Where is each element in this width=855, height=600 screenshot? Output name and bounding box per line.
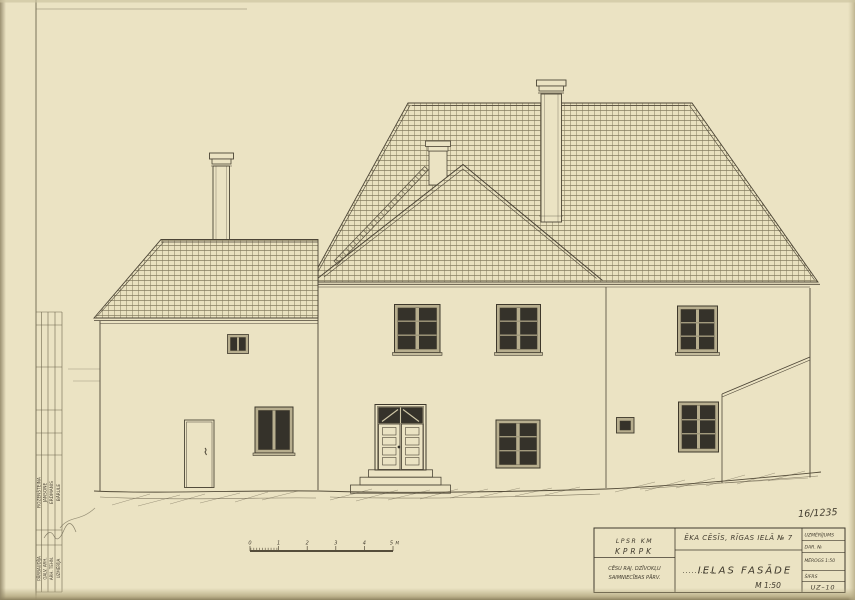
door-handle — [398, 446, 401, 449]
stamp-role-4: UZMĒRĪJA — [56, 559, 61, 579]
window-upper-3 — [676, 306, 720, 355]
scale-label-3: 3 — [334, 541, 337, 547]
stamp-role-3: ARH. TEHN. — [49, 557, 54, 580]
window-upper-1 — [393, 305, 443, 356]
scale-unit: M — [396, 541, 400, 546]
sheet-edge-top — [0, 0, 855, 3]
scale-label-1: 1 — [277, 541, 280, 547]
col-label-dar-nr: DAR. № — [805, 545, 823, 551]
window-small-square — [617, 418, 635, 434]
stamp-name-3: ERDMANIS — [49, 481, 55, 504]
stamp-name-1: ROZENŠTEINA — [35, 477, 42, 508]
col-label-uzmerijums: UZMĒRĪJUMS — [805, 532, 835, 539]
stamp-name-2: JANSONE — [43, 483, 49, 504]
window-lower-2 — [679, 402, 719, 452]
sheet-edge-right — [848, 0, 855, 600]
window-upper-2 — [495, 305, 543, 356]
window-lower-1 — [496, 420, 540, 468]
facade-drawing: ROZENŠTEINA JANSONE ERDMANIS BĀRULE PĀRB… — [0, 0, 855, 600]
project-title: ĒKA CĒSĪS, RĪGAS IELĀ № 7 — [684, 533, 792, 542]
scale-label-0: 0 — [248, 541, 251, 547]
stamp-role-2: GALV. ARH. — [43, 557, 48, 579]
scale-label-2: 2 — [306, 541, 309, 547]
scale-label-5: 5 — [390, 541, 393, 547]
org-name-line2: KPRPK — [615, 547, 654, 556]
annex-attic-window — [228, 335, 249, 354]
stamp-role-1: PĀRBAUDĪJA — [36, 556, 41, 581]
drawing-title: IELAS FASĀDE — [698, 564, 792, 577]
drawing-sheet: ROZENŠTEINA JANSONE ERDMANIS BĀRULE PĀRB… — [0, 0, 855, 600]
org-name-line3: CĒSU RAJ. DZĪVOKĻU — [608, 565, 661, 572]
main-chimney — [537, 80, 567, 222]
col-label-merogs: MĒROGS 1:50 — [805, 557, 836, 564]
pencil-note: 16/1235 — [798, 507, 838, 520]
annex-window — [253, 407, 295, 456]
sheet-edge-bottom — [0, 588, 855, 600]
col-label-sifrs: ŠIFRS — [805, 573, 818, 580]
scale-label-4: 4 — [363, 541, 366, 547]
sheet-edge-left — [0, 0, 6, 600]
org-name-line4: SAIMNIECĪBAS PĀRV. — [609, 574, 661, 581]
stamp-name-4: BĀRULE — [55, 484, 62, 501]
org-name-line1: LPSR KM — [616, 538, 653, 545]
annex-chimney — [210, 153, 234, 240]
